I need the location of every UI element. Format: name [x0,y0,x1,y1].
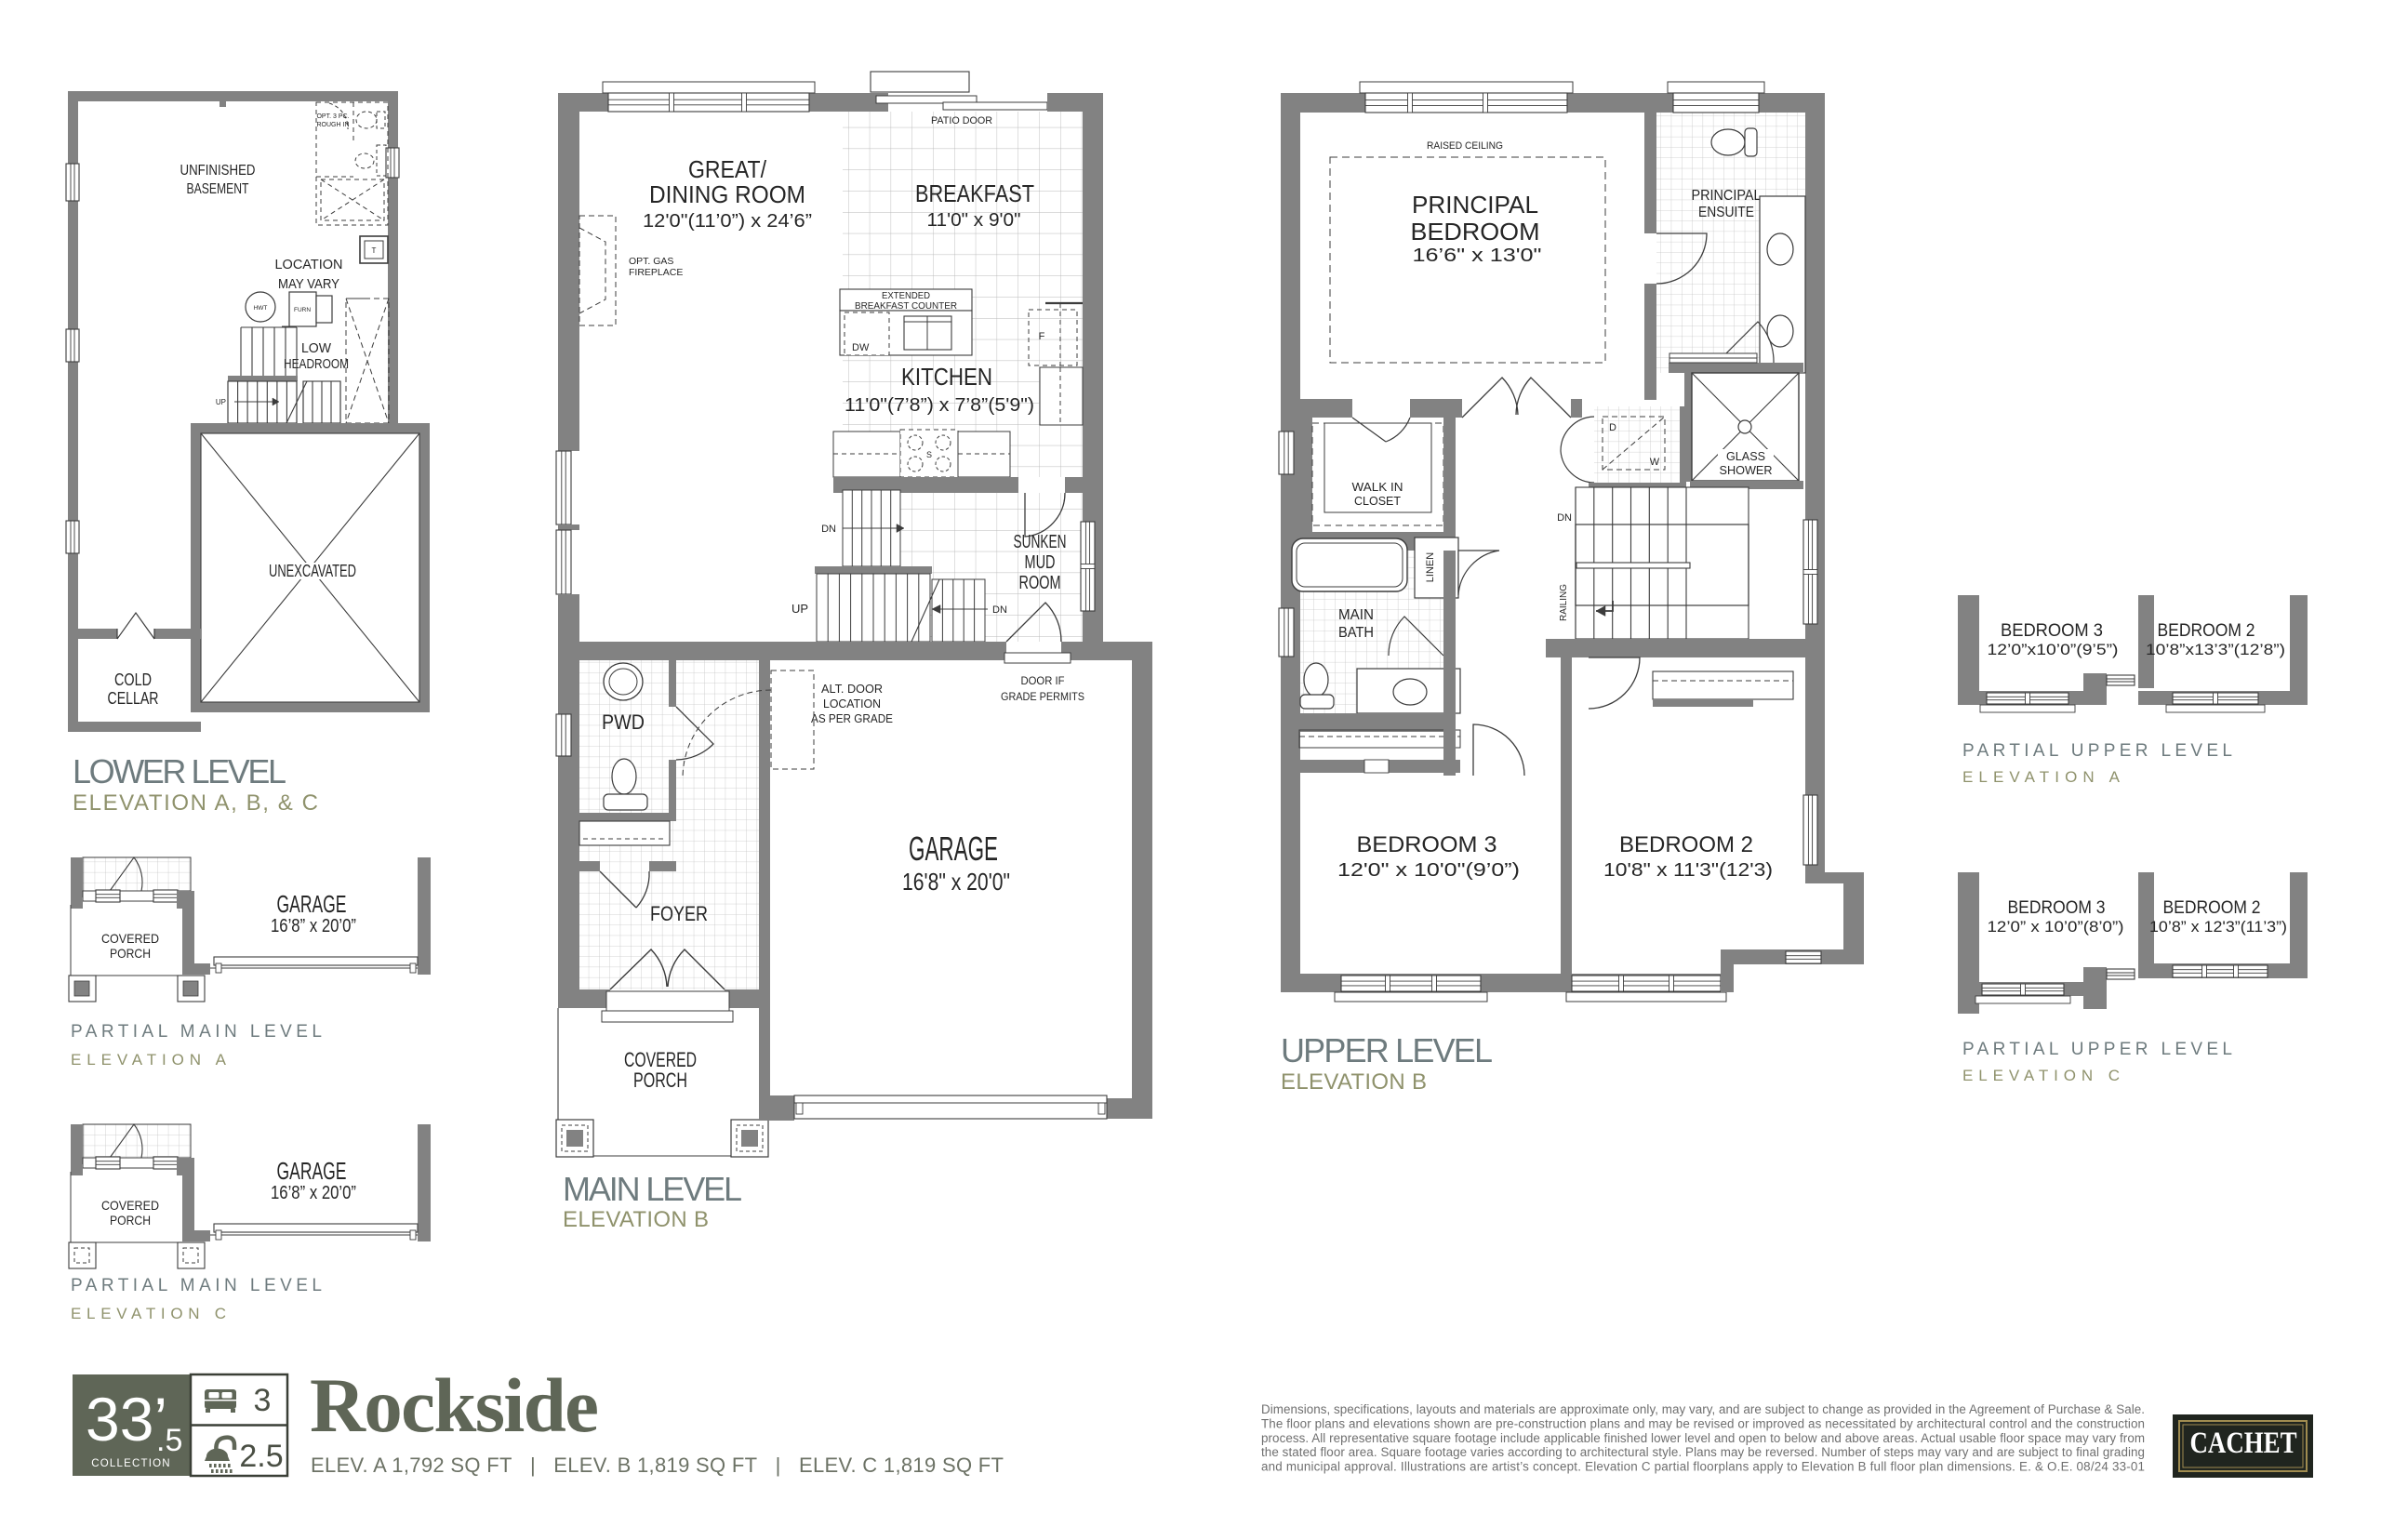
svg-text:S: S [926,450,932,459]
svg-text:2.5: 2.5 [239,1439,283,1474]
svg-text:16’6" x 13'0": 16’6" x 13'0" [1413,246,1542,266]
svg-text:PARTIAL UPPER LEVEL: PARTIAL UPPER LEVEL [1962,1040,2232,1059]
svg-text:UP: UP [216,398,226,406]
svg-text:BEDROOM 3: BEDROOM 3 [2008,898,2106,918]
svg-text:3: 3 [254,1383,272,1418]
svg-text:ROOM: ROOM [1019,573,1061,593]
svg-text:LOW: LOW [301,340,332,356]
svg-text:33’: 33’ [86,1385,167,1454]
svg-text:WALK IN: WALK IN [1352,480,1403,494]
svg-text:BEDROOM: BEDROOM [1411,218,1540,246]
svg-text:ENSUITE: ENSUITE [1698,205,1754,220]
svg-text:LINEN: LINEN [1425,552,1436,582]
svg-text:11'0"(7’8”) x 7’8”(5'9"): 11'0"(7’8”) x 7’8”(5'9") [845,395,1034,416]
svg-text:MAIN LEVEL: MAIN LEVEL [563,1170,742,1208]
svg-text:LOCATION: LOCATION [823,697,881,710]
svg-text:PORCH: PORCH [110,1213,151,1228]
svg-text:MAIN: MAIN [1338,607,1374,623]
svg-text:GARAGE: GARAGE [909,830,998,868]
svg-text:Rockside: Rockside [310,1362,599,1448]
svg-text:MAY VARY: MAY VARY [278,276,339,292]
svg-text:BATH: BATH [1338,625,1374,641]
svg-text:DN: DN [992,604,1007,616]
svg-text:The floor plans and elevations: The floor plans and elevations shown are… [1261,1416,2145,1430]
svg-text:Dimensions, specifications, la: Dimensions, specifications, layouts and … [1261,1402,2145,1416]
svg-text:DINING ROOM: DINING ROOM [649,180,805,208]
svg-text:HEADROOM: HEADROOM [284,356,349,372]
svg-text:PRINCIPAL: PRINCIPAL [1412,191,1538,219]
svg-text:ELEVATION B: ELEVATION B [1281,1069,1427,1095]
svg-text:PATIO DOOR: PATIO DOOR [931,115,992,126]
svg-text:ELEVATION A, B, & C: ELEVATION A, B, & C [73,790,318,816]
svg-text:GLASS: GLASS [1726,449,1765,463]
svg-text:CLOSET: CLOSET [1354,494,1401,508]
svg-text:FURN: FURN [294,307,311,313]
svg-text:AS PER GRADE: AS PER GRADE [811,711,893,725]
svg-text:12’0”x10’0”(9’5”): 12’0”x10’0”(9’5”) [1988,641,2119,658]
svg-text:10’8”x13’3”(12’8”): 10’8”x13’3”(12’8”) [2146,641,2285,658]
svg-text:PORCH: PORCH [633,1069,687,1092]
svg-text:BEDROOM 3: BEDROOM 3 [1357,832,1497,857]
svg-text:COLD: COLD [114,670,152,689]
svg-text:PORCH: PORCH [110,946,151,961]
svg-text:12'0"(11’0”) x 24’6”: 12'0"(11’0”) x 24’6” [643,211,812,232]
svg-text:and municipal approval. Illust: and municipal approval. Illustrations ar… [1261,1460,2145,1474]
svg-text:OPT. 3 PC.: OPT. 3 PC. [316,113,349,120]
svg-text:BEDROOM 2: BEDROOM 2 [2158,621,2255,641]
svg-text:16’8” x 20’0”: 16’8” x 20’0” [271,1183,356,1203]
svg-text:ELEVATION B: ELEVATION B [563,1207,709,1232]
svg-text:ALT. DOOR: ALT. DOOR [821,682,883,696]
svg-text:process. All representative sq: process. All representative square foota… [1261,1431,2145,1445]
svg-text:FOYER: FOYER [650,902,708,925]
svg-text:MUD: MUD [1025,552,1056,573]
svg-text:W: W [1650,457,1660,468]
svg-text:10'8" x 11'3"(12'3): 10'8" x 11'3"(12'3) [1603,860,1773,881]
svg-text:BREAKFAST COUNTER: BREAKFAST COUNTER [855,301,957,312]
svg-text:16'8" x 20'0": 16'8" x 20'0" [902,868,1010,896]
svg-text:BREAKFAST: BREAKFAST [915,179,1034,207]
svg-text:the stated floor area. Square: the stated floor area. Square footage va… [1261,1445,2145,1459]
svg-text:HWT: HWT [254,305,268,312]
svg-text:DOOR IF: DOOR IF [1021,676,1065,687]
svg-text:BEDROOM 2: BEDROOM 2 [1619,832,1753,857]
svg-text:RAISED CEILING: RAISED CEILING [1427,140,1503,152]
svg-text:12’0” x 10’0”(8’0”): 12’0” x 10’0”(8’0”) [1988,918,2124,936]
svg-text:SHOWER: SHOWER [1720,463,1773,477]
svg-text:UNFINISHED: UNFINISHED [180,163,256,179]
svg-text:PARTIAL UPPER LEVEL: PARTIAL UPPER LEVEL [1962,741,2232,761]
svg-text:SUNKEN: SUNKEN [1014,532,1067,552]
svg-text:PRINCIPAL: PRINCIPAL [1692,188,1762,204]
svg-text:12'0" x 10'0"(9’0”): 12'0" x 10'0"(9’0”) [1337,860,1520,881]
svg-text:COLLECTION: COLLECTION [91,1458,171,1469]
svg-text:F: F [1039,331,1045,342]
svg-text:GRADE PERMITS: GRADE PERMITS [1001,692,1084,703]
svg-text:PWD: PWD [602,710,645,734]
svg-text:UNEXCAVATED: UNEXCAVATED [269,562,356,580]
svg-text:FIREPLACE: FIREPLACE [629,267,683,278]
svg-text:RAILING: RAILING [1559,584,1569,621]
svg-text:ROUGH IN: ROUGH IN [317,122,350,128]
svg-text:LOWER LEVEL: LOWER LEVEL [73,752,286,790]
svg-text:EXTENDED: EXTENDED [882,291,930,301]
svg-text:BEDROOM 3: BEDROOM 3 [2001,621,2103,641]
svg-text:BASEMENT: BASEMENT [187,181,249,197]
svg-text:CELLAR: CELLAR [108,689,159,708]
svg-text:CACHET: CACHET [2190,1427,2297,1460]
svg-text:D: D [1609,422,1616,433]
svg-text:.5: .5 [156,1423,182,1458]
svg-text:OPT. GAS: OPT. GAS [629,256,673,267]
svg-text:DN: DN [821,524,836,535]
svg-text:10’8” x 12'3”(11’3”): 10’8” x 12'3”(11’3”) [2149,918,2287,936]
svg-text:GREAT/: GREAT/ [688,155,767,183]
svg-text:COVERED: COVERED [101,1198,159,1213]
svg-text:GARAGE: GARAGE [277,890,347,918]
svg-text:ELEV. A 1,792 SQ FT | ELEV: ELEV. A 1,792 SQ FT | ELEV. B 1,819 SQ F… [311,1454,1004,1477]
svg-text:DN: DN [1557,512,1572,524]
svg-text:UP: UP [791,602,808,616]
svg-text:KITCHEN: KITCHEN [901,363,992,391]
svg-text:GARAGE: GARAGE [277,1157,347,1185]
svg-text:16’8” x 20’0”: 16’8” x 20’0” [271,916,356,936]
svg-text:T: T [372,246,377,255]
svg-text:DW: DW [852,342,870,353]
svg-text:UPPER LEVEL: UPPER LEVEL [1281,1031,1493,1069]
svg-text:11'0" x 9'0": 11'0" x 9'0" [927,210,1021,231]
svg-text:BEDROOM 2: BEDROOM 2 [2163,898,2261,918]
svg-text:LOCATION: LOCATION [275,257,343,272]
svg-text:COVERED: COVERED [101,931,159,946]
